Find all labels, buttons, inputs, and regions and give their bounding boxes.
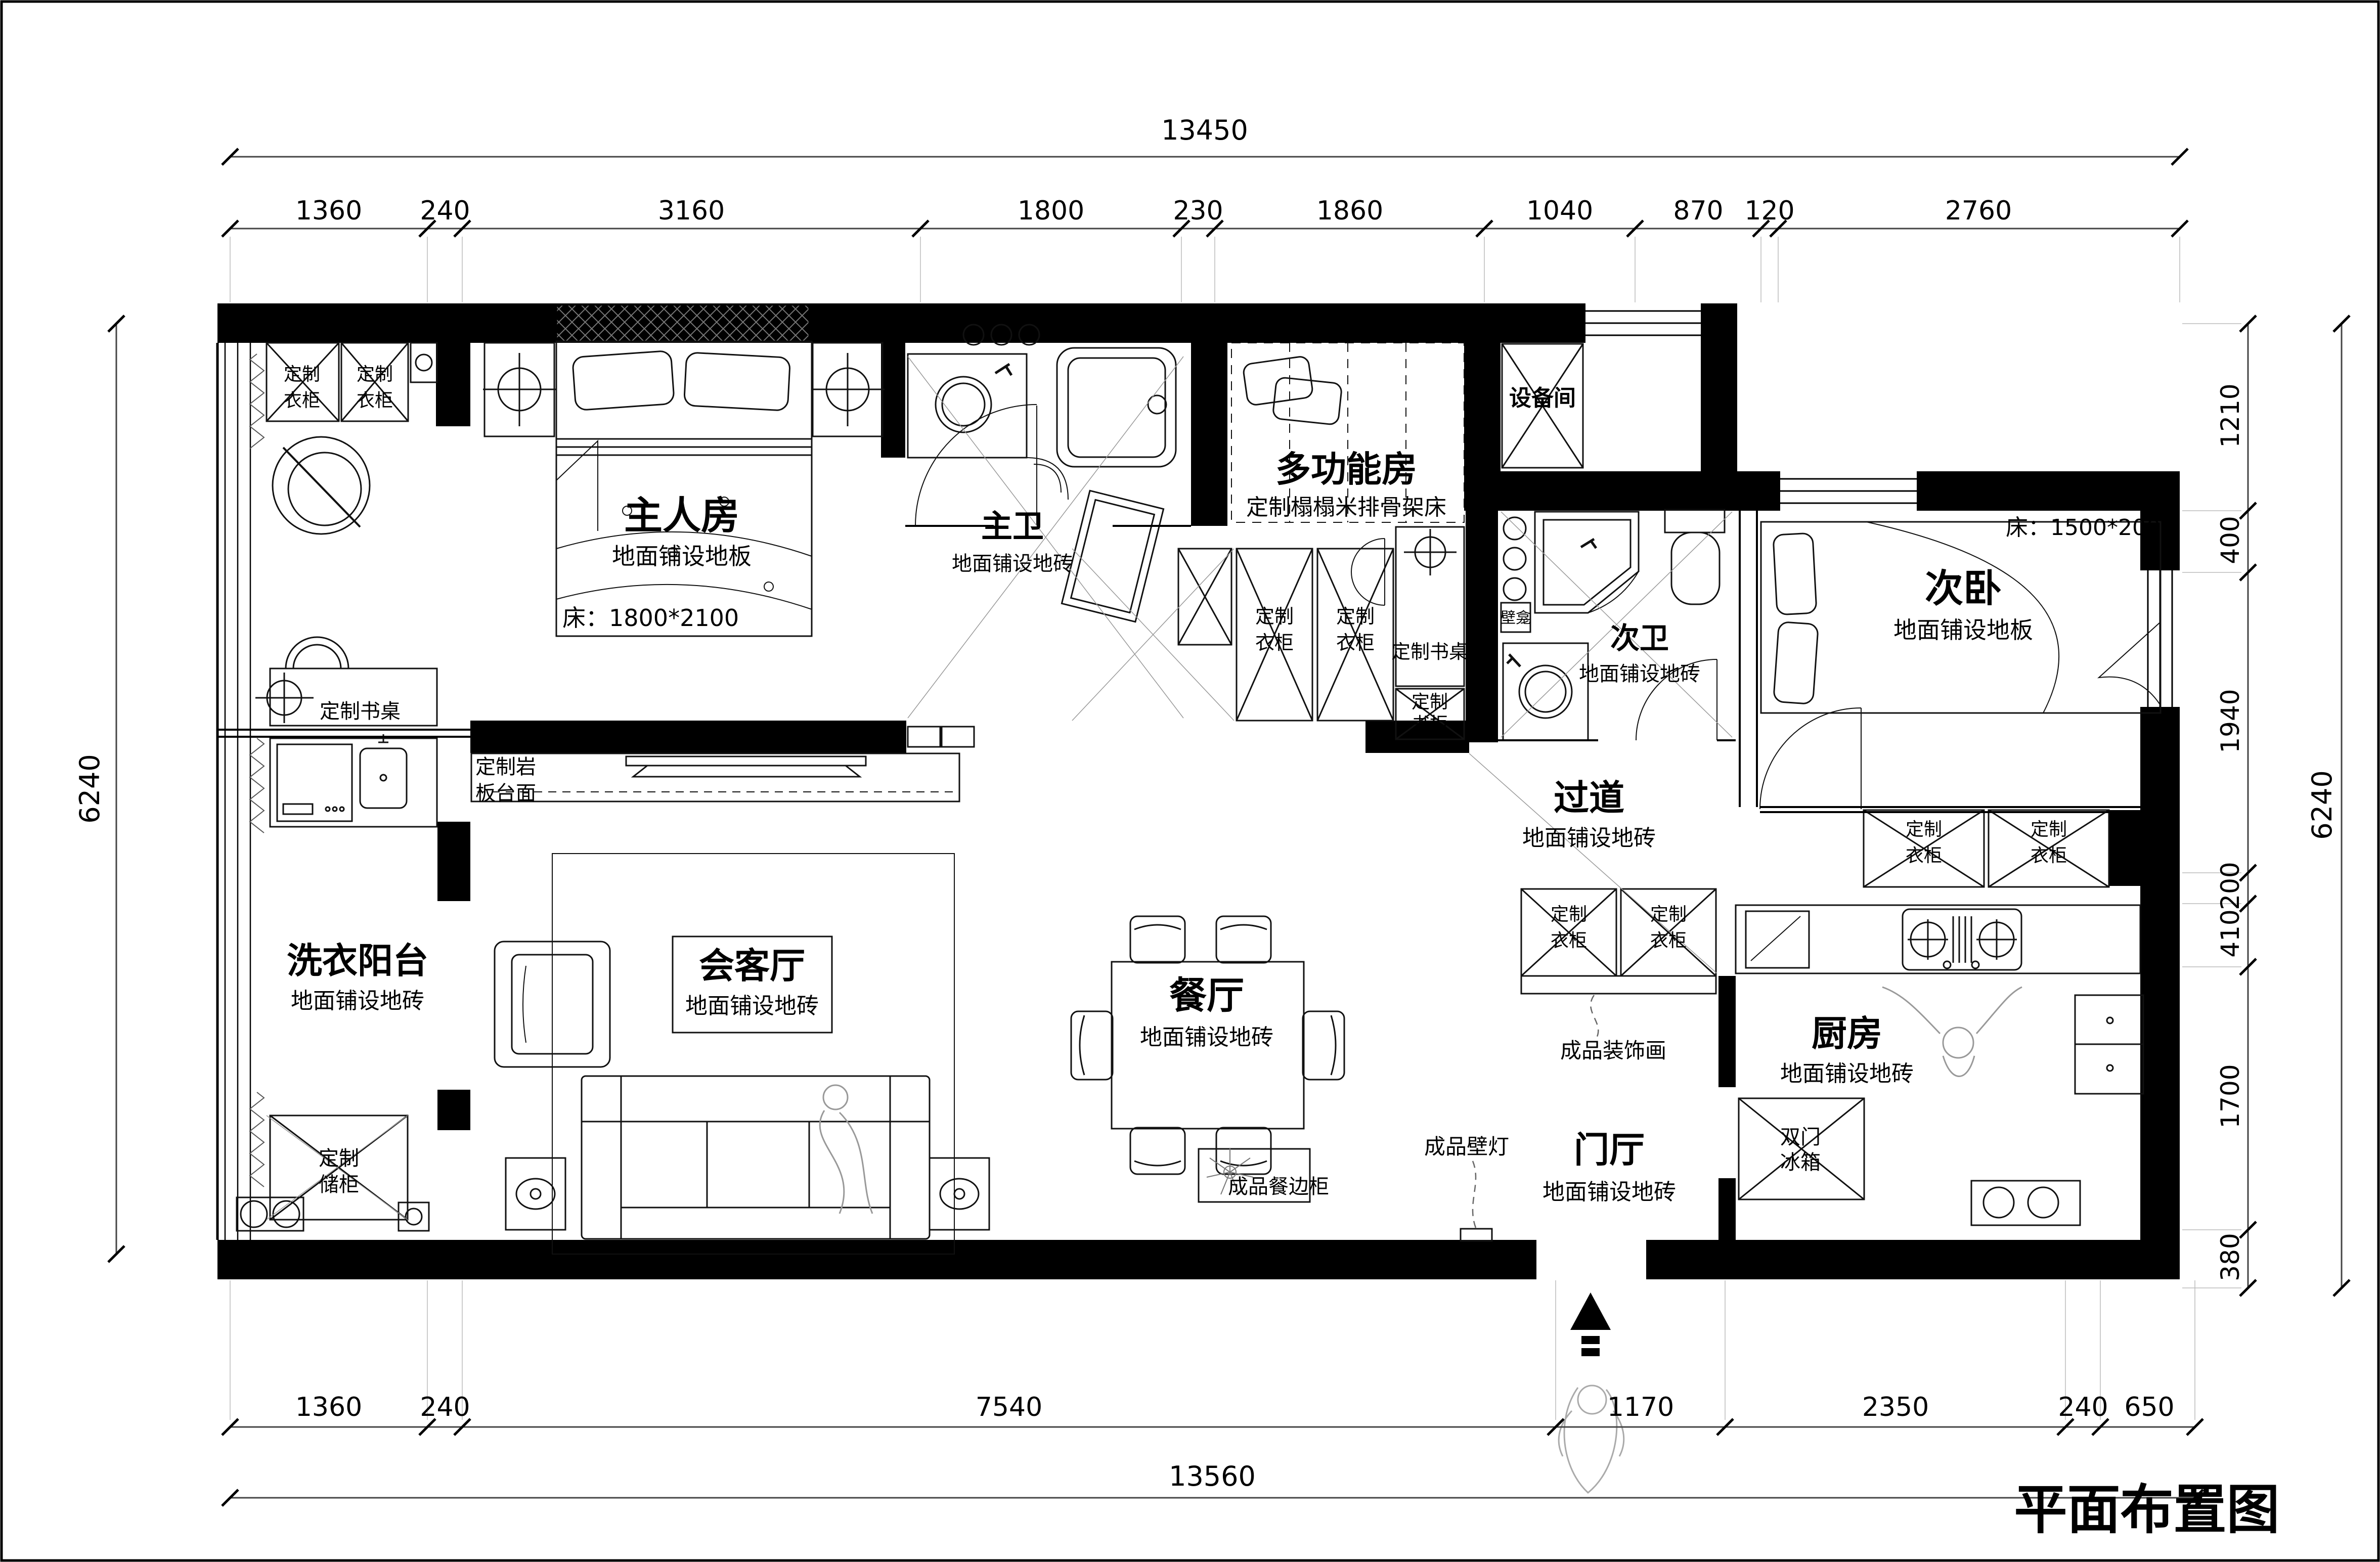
label-定制: 定制 xyxy=(1906,819,1942,840)
wall xyxy=(1718,976,1736,1087)
label-地面铺设地板: 地面铺设地板 xyxy=(612,543,752,570)
label-地面铺设地砖: 地面铺设地砖 xyxy=(952,552,1073,575)
label-书柜: 书柜 xyxy=(1412,714,1448,735)
wall xyxy=(437,1090,470,1130)
label-衣柜: 衣柜 xyxy=(2031,845,2067,866)
laundry-counter xyxy=(270,734,437,827)
label-壁龛: 壁龛 xyxy=(1501,609,1531,627)
label-定制书桌: 定制书桌 xyxy=(1391,641,1468,663)
label-6240: 6240 xyxy=(74,754,106,823)
label-240: 240 xyxy=(2058,1392,2108,1422)
tv-console xyxy=(471,753,959,801)
label-定制榻榻米排骨架床: 定制榻榻米排骨架床 xyxy=(1246,495,1446,520)
door-frame xyxy=(942,727,974,747)
label-冰箱: 冰箱 xyxy=(1780,1151,1821,1174)
label-1700: 1700 xyxy=(2216,1064,2245,1128)
lamp-table-right xyxy=(930,1158,989,1230)
curtain-symbol xyxy=(250,354,264,449)
master-bath-fixtures xyxy=(908,325,1176,622)
label-成品壁灯: 成品壁灯 xyxy=(1424,1134,1509,1159)
label-3160: 3160 xyxy=(658,196,725,226)
label-储柜: 储柜 xyxy=(319,1173,359,1196)
nightstand-left xyxy=(483,343,556,436)
small-cabinet xyxy=(411,343,437,382)
bay-window-hatch xyxy=(556,305,809,341)
label-会客厅: 会客厅 xyxy=(699,945,805,987)
label-衣柜: 衣柜 xyxy=(1551,930,1587,951)
label-成品装饰画: 成品装饰画 xyxy=(1560,1038,1666,1063)
label-定制: 定制 xyxy=(357,364,393,385)
label-衣柜: 衣柜 xyxy=(1906,845,1942,866)
label-定制: 定制 xyxy=(1551,904,1587,925)
label-2760: 2760 xyxy=(1945,196,2012,226)
label-次卫: 次卫 xyxy=(1610,621,1669,655)
label-410: 410 xyxy=(2216,909,2245,957)
label-6240: 6240 xyxy=(2306,770,2338,839)
label-870: 870 xyxy=(1673,196,1723,226)
label-定制: 定制 xyxy=(1336,605,1375,628)
sofa xyxy=(582,1076,930,1239)
small-basin xyxy=(416,354,432,371)
label-成品餐边柜: 成品餐边柜 xyxy=(1228,1175,1329,1198)
leader-wall-lamp xyxy=(1473,1161,1476,1228)
wall xyxy=(470,721,906,753)
label-衣柜: 衣柜 xyxy=(284,390,320,411)
label-板台面: 板台面 xyxy=(475,782,536,805)
wall xyxy=(2109,810,2140,886)
curtain-symbol xyxy=(250,1092,264,1187)
label-1800: 1800 xyxy=(1018,196,1084,226)
cabinet-box xyxy=(1178,549,1231,645)
wall-lamp xyxy=(1461,1229,1492,1241)
label-主卫: 主卫 xyxy=(981,508,1044,545)
wall xyxy=(217,303,1585,343)
curtain-symbol xyxy=(250,738,264,833)
label-餐厅: 餐厅 xyxy=(1169,974,1244,1017)
lamp-table-left xyxy=(506,1158,565,1230)
label-230: 230 xyxy=(1173,196,1223,226)
label-床：1500*2000: 床：1500*2000 xyxy=(2006,515,2175,541)
label-地面铺设地砖: 地面铺设地砖 xyxy=(685,993,819,1019)
label-地面铺设地砖: 地面铺设地砖 xyxy=(1522,825,1656,851)
door-frame xyxy=(908,727,940,747)
leader-painting xyxy=(1591,995,1598,1037)
label-400: 400 xyxy=(2216,516,2245,564)
wall xyxy=(217,303,258,343)
label-多功能房: 多功能房 xyxy=(1275,449,1417,490)
label-定制书桌: 定制书桌 xyxy=(320,700,401,723)
label-主人房: 主人房 xyxy=(624,493,739,538)
label-13560: 13560 xyxy=(1169,1460,1256,1492)
wall xyxy=(1718,1178,1736,1240)
label-1860: 1860 xyxy=(1316,196,1383,226)
wall xyxy=(1466,511,1498,742)
label-次卧: 次卧 xyxy=(1925,566,2002,611)
label-厨房: 厨房 xyxy=(1812,1013,1882,1054)
label-门厅: 门厅 xyxy=(1574,1129,1645,1171)
label-200: 200 xyxy=(2216,862,2245,910)
label-衣柜: 衣柜 xyxy=(1650,930,1687,951)
label-地面铺设地砖: 地面铺设地砖 xyxy=(1140,1024,1273,1050)
wall xyxy=(1646,1240,2180,1279)
wall xyxy=(881,341,905,458)
label-1360: 1360 xyxy=(295,1392,362,1422)
label-240: 240 xyxy=(420,1392,470,1422)
label-1170: 1170 xyxy=(1607,1392,1674,1422)
wall xyxy=(2140,707,2180,1279)
label-地面铺设地砖: 地面铺设地砖 xyxy=(1542,1179,1676,1205)
label-床：1800*2100: 床：1800*2100 xyxy=(562,604,739,632)
label-洗衣阳台: 洗衣阳台 xyxy=(287,940,428,981)
wall xyxy=(1191,341,1227,526)
wall xyxy=(436,343,470,426)
cabinet-box xyxy=(1739,1098,1864,1199)
label-1210: 1210 xyxy=(2216,383,2245,448)
label-240: 240 xyxy=(420,196,470,226)
label-380: 380 xyxy=(2216,1233,2245,1281)
wall xyxy=(217,1240,258,1279)
label-地面铺设地板: 地面铺设地板 xyxy=(1893,616,2033,644)
label-地面铺设地砖: 地面铺设地砖 xyxy=(291,988,424,1014)
wall xyxy=(437,822,470,901)
entry-arrow xyxy=(1570,1292,1611,1356)
label-1940: 1940 xyxy=(2216,689,2245,753)
wall xyxy=(217,1240,1536,1279)
round-chair xyxy=(273,437,370,534)
label-衣柜: 衣柜 xyxy=(357,390,393,411)
label-过道: 过道 xyxy=(1554,777,1624,819)
drawing-title: 平面布置图 xyxy=(2014,1478,2279,1541)
label-2350: 2350 xyxy=(1862,1392,1929,1422)
label-地面铺设地砖: 地面铺设地砖 xyxy=(1579,662,1700,686)
label-地面铺设地砖: 地面铺设地砖 xyxy=(1780,1061,1914,1087)
label-定制: 定制 xyxy=(1255,605,1294,628)
floor-plan-sheet: 1345013602403160180023018601040870120276… xyxy=(0,0,2380,1562)
label-定制: 定制 xyxy=(319,1147,359,1170)
label-定制岩: 定制岩 xyxy=(475,755,536,779)
living-ceiling-line xyxy=(552,854,954,1254)
label-衣柜: 衣柜 xyxy=(1336,632,1375,654)
label-120: 120 xyxy=(1744,196,1794,226)
label-设备间: 设备间 xyxy=(1509,385,1576,411)
label-定制: 定制 xyxy=(284,364,320,385)
label-13450: 13450 xyxy=(1161,114,1248,146)
label-定制: 定制 xyxy=(1650,904,1687,925)
label-1360: 1360 xyxy=(295,196,362,226)
label-7540: 7540 xyxy=(976,1392,1042,1422)
master-bed xyxy=(556,341,812,636)
label-衣柜: 衣柜 xyxy=(1255,632,1294,654)
label-定制: 定制 xyxy=(1412,692,1448,712)
label-1040: 1040 xyxy=(1526,196,1593,226)
sheet-border xyxy=(2,2,2378,1560)
label-双门: 双门 xyxy=(1780,1126,1821,1149)
label-定制: 定制 xyxy=(2031,819,2067,840)
label-650: 650 xyxy=(2124,1392,2174,1422)
nightstand-right xyxy=(811,343,885,436)
floor-plan-drawing: 1345013602403160180023018601040870120276… xyxy=(0,0,2380,1562)
second-bedroom-door xyxy=(1760,708,1861,809)
